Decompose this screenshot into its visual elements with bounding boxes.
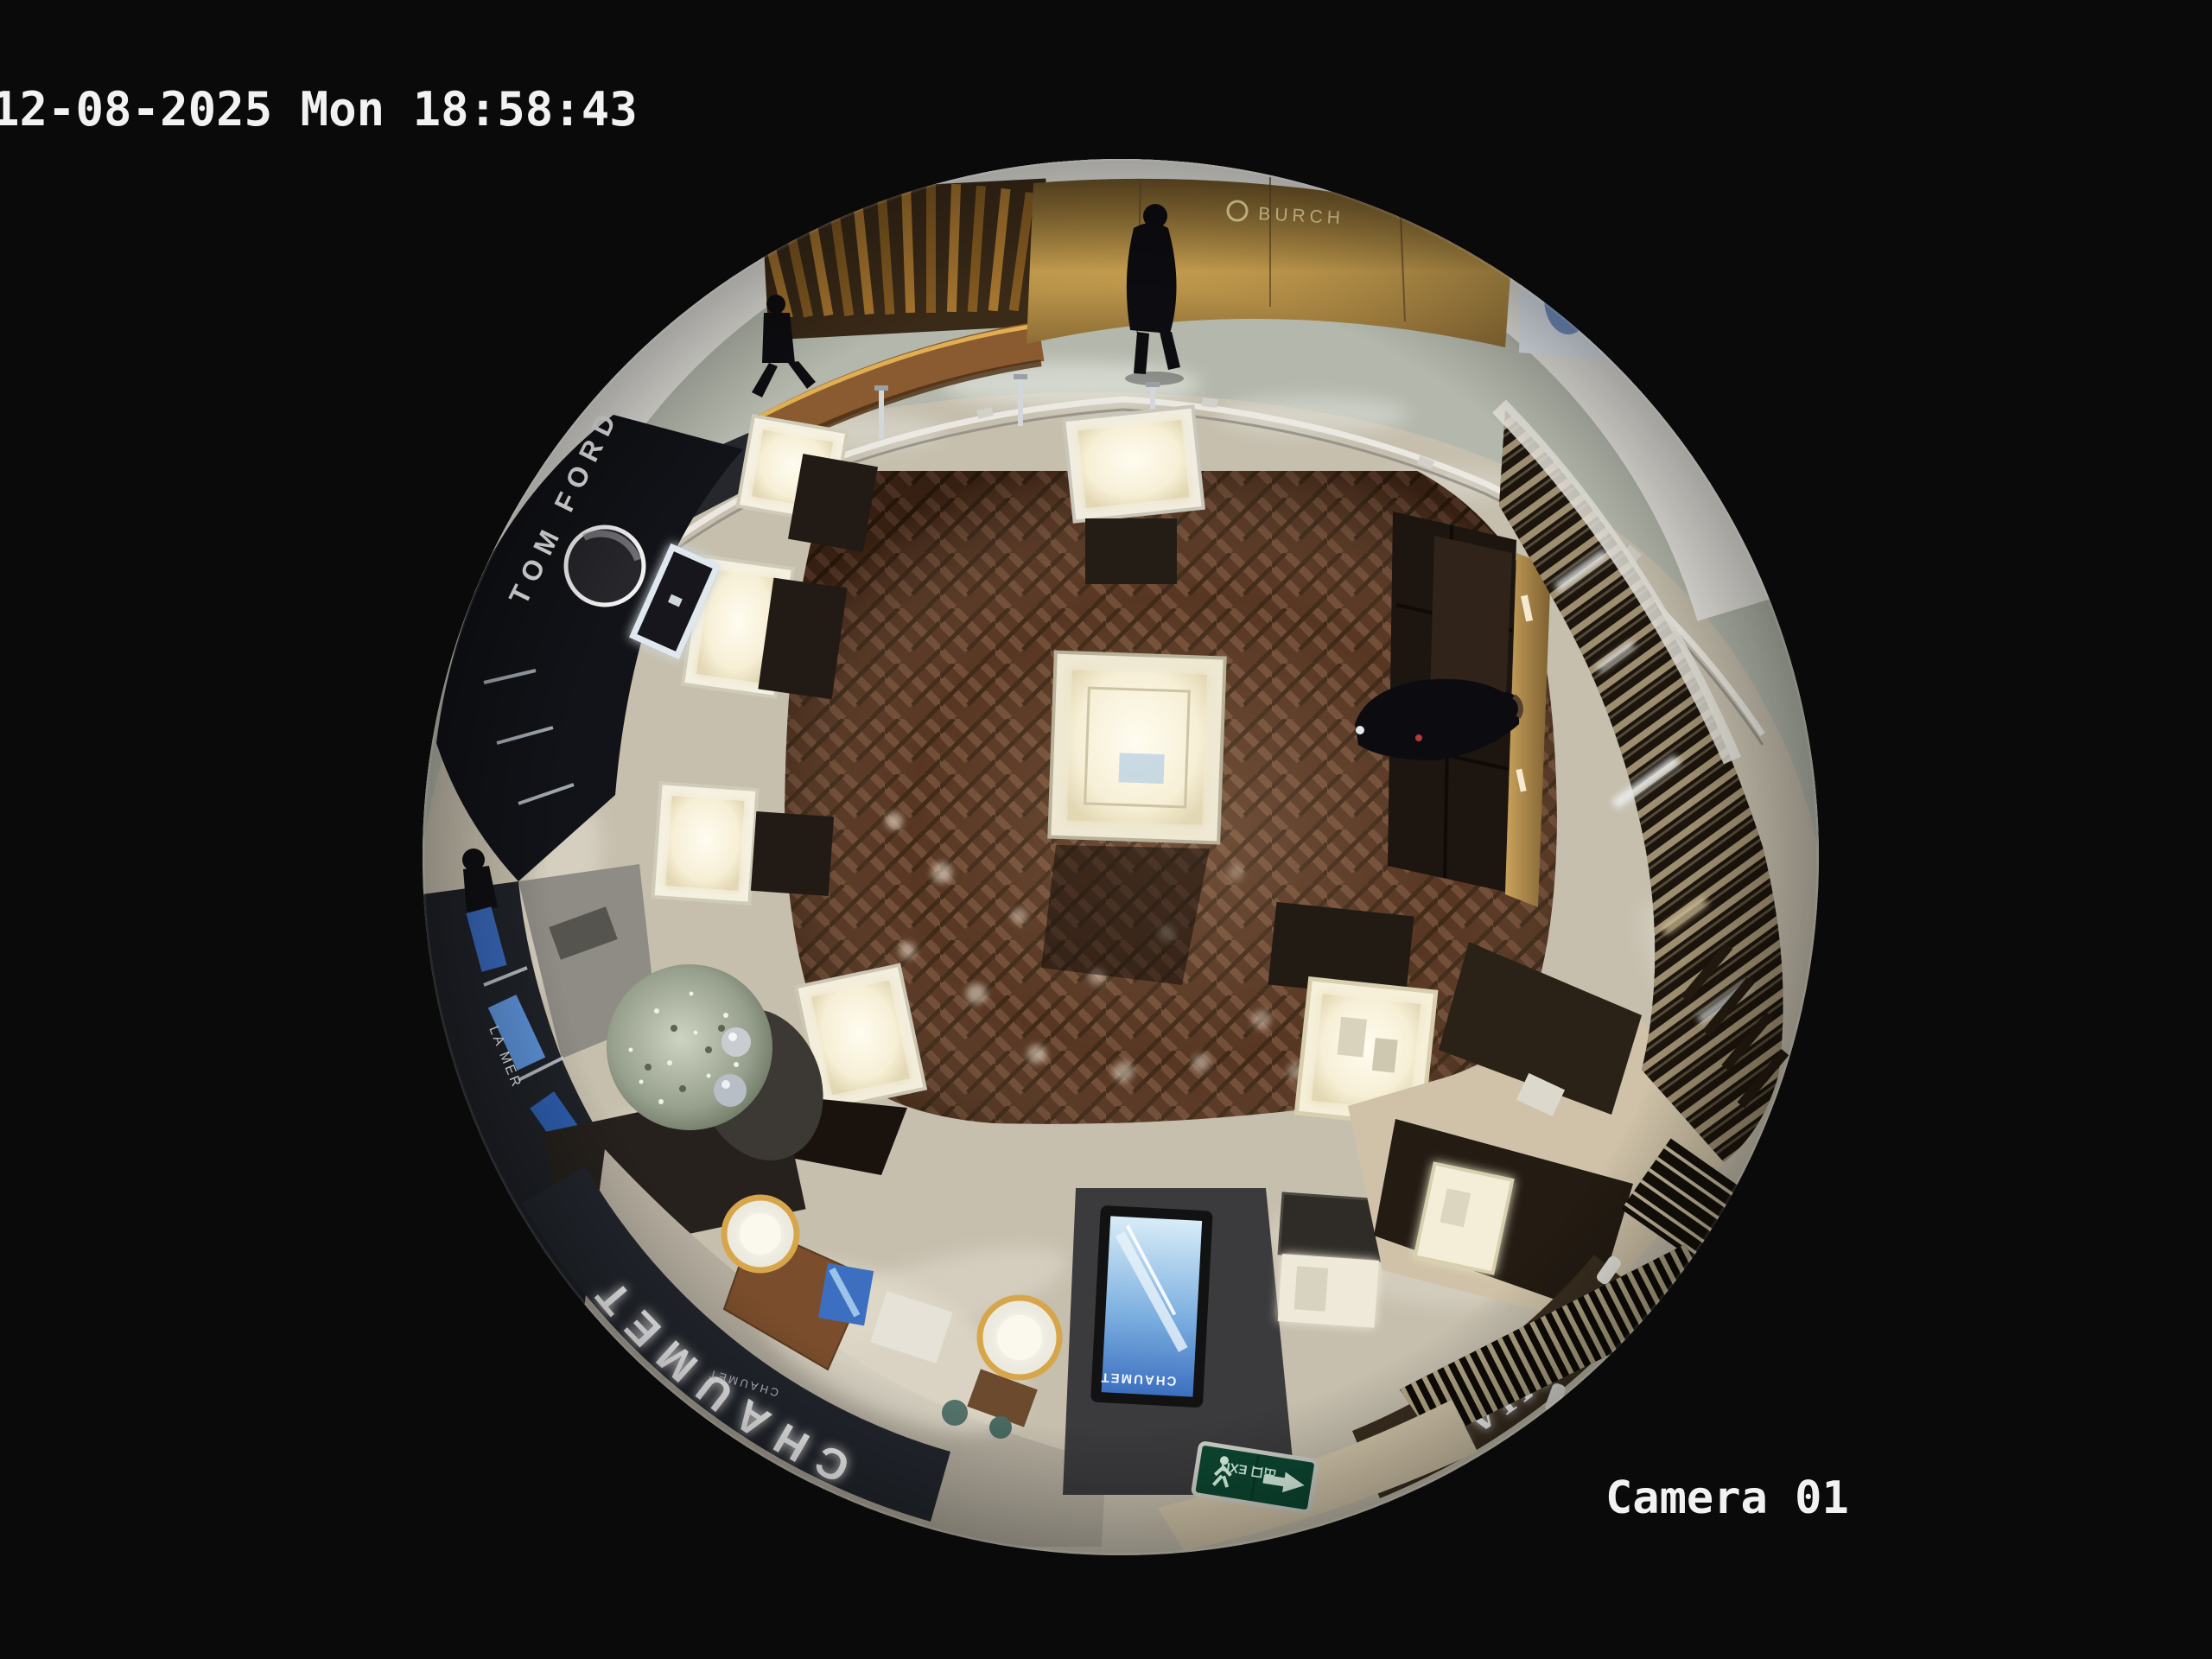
fisheye-camera-feed: BURCH xyxy=(0,0,2212,1659)
osd-timestamp: 12-08-2025 Mon 18:58:43 xyxy=(0,86,638,133)
osd-camera-label: Camera 01 xyxy=(1605,1476,1849,1521)
fisheye-vignette xyxy=(423,159,1819,1555)
cctv-monitor-screen: BURCH xyxy=(0,0,2212,1659)
